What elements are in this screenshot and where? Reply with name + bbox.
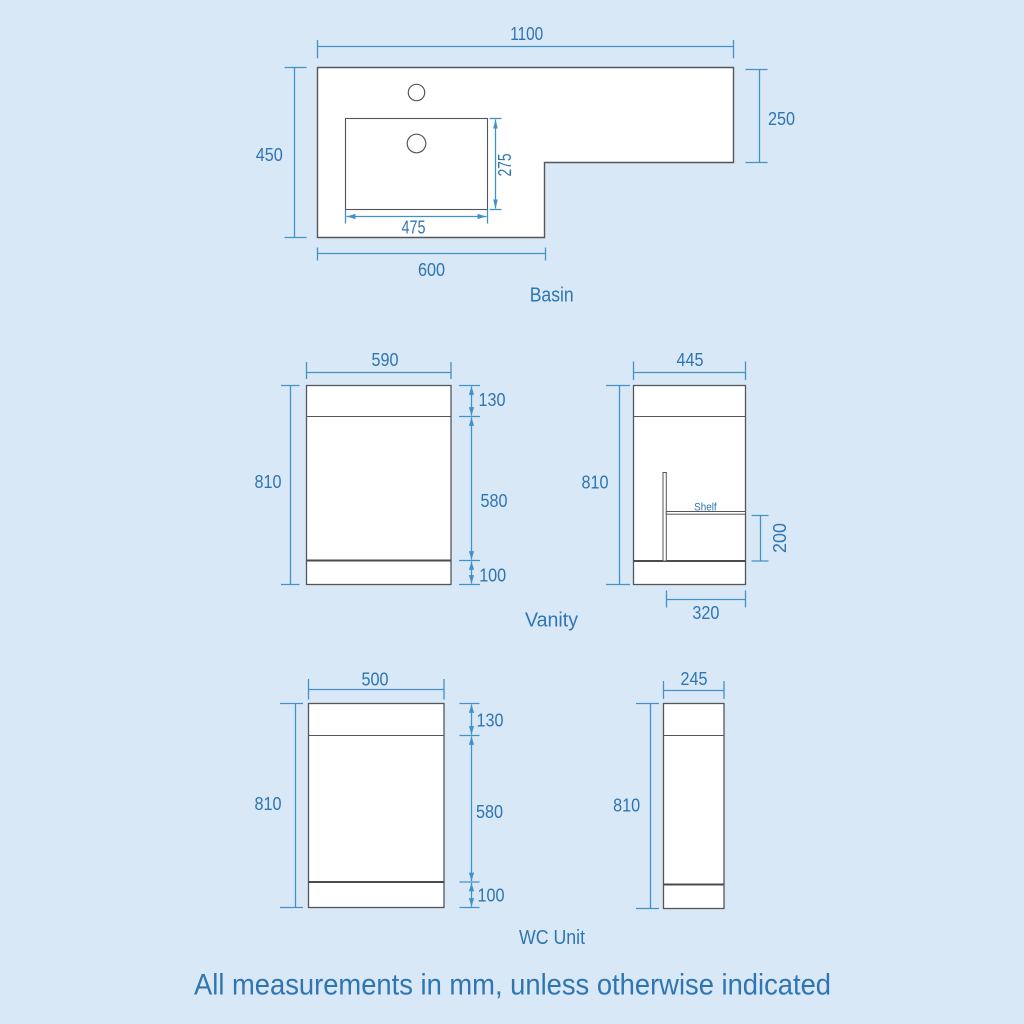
svg-text:445: 445 bbox=[677, 350, 704, 370]
svg-text:580: 580 bbox=[481, 491, 508, 511]
svg-text:810: 810 bbox=[255, 794, 282, 814]
svg-text:475: 475 bbox=[402, 218, 426, 238]
svg-text:WC Unit: WC Unit bbox=[519, 927, 585, 949]
svg-text:Shelf: Shelf bbox=[694, 502, 717, 514]
svg-text:810: 810 bbox=[255, 472, 282, 492]
svg-text:1100: 1100 bbox=[510, 24, 543, 44]
svg-text:810: 810 bbox=[582, 472, 609, 492]
svg-text:590: 590 bbox=[372, 350, 399, 370]
svg-text:Vanity: Vanity bbox=[525, 610, 578, 632]
svg-text:450: 450 bbox=[256, 145, 283, 165]
svg-text:130: 130 bbox=[477, 711, 504, 731]
svg-text:100: 100 bbox=[479, 566, 506, 586]
svg-text:500: 500 bbox=[362, 670, 389, 690]
svg-text:810: 810 bbox=[613, 796, 640, 816]
svg-text:580: 580 bbox=[476, 802, 503, 822]
svg-text:200: 200 bbox=[770, 523, 790, 553]
svg-text:275: 275 bbox=[495, 154, 515, 177]
svg-text:130: 130 bbox=[479, 390, 506, 410]
svg-text:Basin: Basin bbox=[530, 285, 574, 307]
svg-text:100: 100 bbox=[478, 886, 505, 906]
svg-text:245: 245 bbox=[681, 669, 708, 689]
svg-text:600: 600 bbox=[418, 260, 445, 280]
svg-text:All measurements in mm, unless: All measurements in mm, unless otherwise… bbox=[194, 969, 831, 1002]
svg-text:320: 320 bbox=[692, 603, 719, 623]
svg-text:250: 250 bbox=[768, 109, 795, 129]
